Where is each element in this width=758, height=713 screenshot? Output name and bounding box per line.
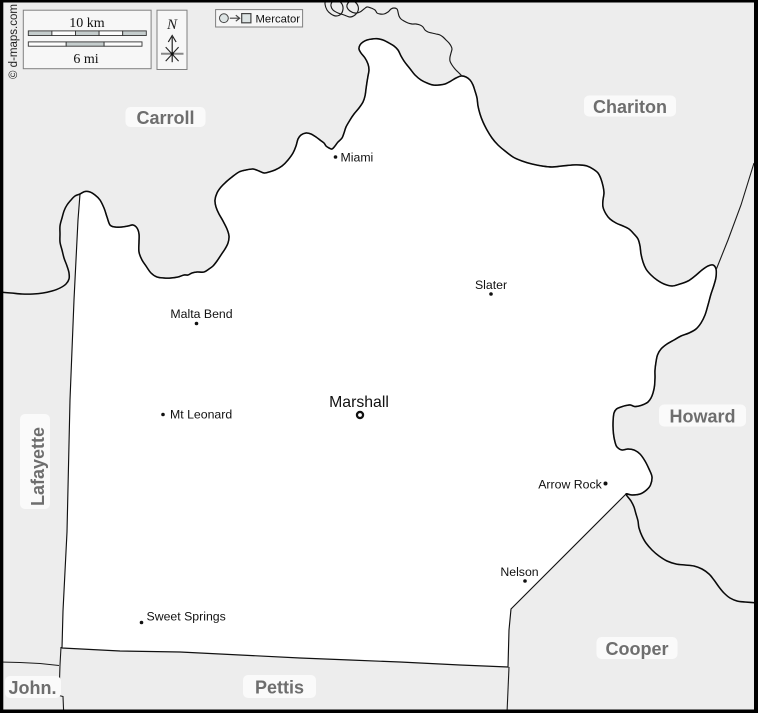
svg-text:Marshall: Marshall	[329, 394, 389, 411]
svg-text:Cooper: Cooper	[606, 639, 669, 659]
svg-text:Malta Bend: Malta Bend	[170, 307, 232, 321]
svg-text:John.: John.	[9, 678, 57, 698]
svg-text:Nelson: Nelson	[500, 565, 538, 579]
svg-text:Carroll: Carroll	[136, 108, 194, 128]
svg-text:© d-maps.com: © d-maps.com	[8, 4, 20, 79]
svg-text:Mt Leonard: Mt Leonard	[170, 408, 232, 422]
svg-text:Lafayette: Lafayette	[28, 427, 48, 506]
svg-text:10 km: 10 km	[69, 16, 105, 31]
svg-text:Howard: Howard	[669, 407, 735, 427]
svg-text:Arrow Rock: Arrow Rock	[538, 478, 602, 492]
svg-text:Miami: Miami	[341, 151, 374, 165]
svg-text:Mercator: Mercator	[256, 13, 301, 25]
svg-text:Sweet Springs: Sweet Springs	[147, 610, 226, 624]
svg-text:6 mi: 6 mi	[73, 52, 98, 67]
svg-text:N: N	[166, 17, 178, 33]
svg-text:Slater: Slater	[475, 278, 507, 292]
svg-text:Pettis: Pettis	[255, 678, 304, 698]
svg-text:Chariton: Chariton	[593, 97, 667, 117]
